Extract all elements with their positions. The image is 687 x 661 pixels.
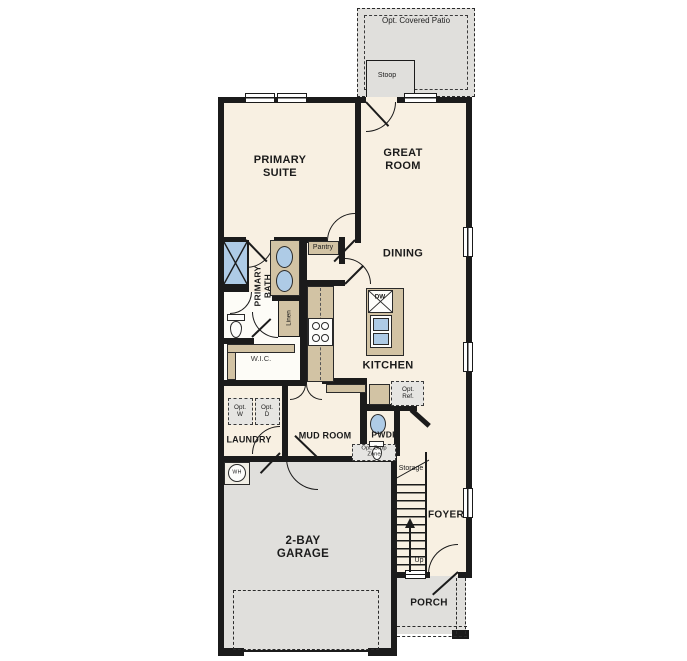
window (404, 93, 437, 103)
primary-suite-line1: PRIMARY (254, 154, 306, 167)
shower-x-pattern (224, 242, 247, 284)
pantry-label: Pantry (313, 244, 333, 252)
opt-dryer-line1: Opt. (261, 404, 273, 411)
stair-right-edge (425, 452, 427, 578)
wall-bath-kitchen-divider (300, 237, 307, 384)
opt-dryer-line2: D (261, 411, 273, 418)
shower (222, 240, 249, 286)
wall-laundry-mud-divider (282, 386, 288, 458)
porch-dashed-edge (456, 578, 457, 634)
laundry-label: LAUNDRY (226, 434, 271, 447)
fridge-cabinet (369, 384, 390, 405)
opt-washer-line1: Opt. (234, 404, 246, 411)
island-sink-basin (373, 318, 389, 331)
porch-label: PORCH (410, 597, 448, 610)
stoop-label: Stoop (378, 72, 396, 80)
primary-suite-label: PRIMARY SUITE (254, 154, 306, 180)
porch-dashed-edge (397, 636, 467, 637)
up-arrow-shaft (409, 527, 411, 572)
dw-label: DW (375, 294, 386, 301)
pwdr-label: PWDR (371, 429, 398, 442)
opt-washer-line2: W (234, 411, 246, 418)
opt-ref-label: Opt. Ref. (402, 386, 414, 400)
linen-label: Linen (286, 310, 293, 325)
window (463, 227, 473, 257)
great-room-line1: GREAT (383, 147, 422, 160)
garage-line1: 2-BAY (277, 535, 329, 548)
porch-corner-post (452, 630, 469, 639)
toilet-tank (227, 314, 245, 321)
garage-door-threshold (244, 650, 368, 652)
window (463, 342, 473, 372)
opt-ref-line2: Ref. (402, 393, 414, 400)
garage-door-dashed (233, 590, 379, 650)
garage-line2: GARAGE (277, 548, 329, 561)
primary-bath-label: PRIMARY BATH (254, 266, 273, 307)
wall-primary-great-divider (355, 97, 361, 243)
vanity-sink (276, 246, 293, 268)
window (277, 93, 307, 103)
burner (312, 334, 320, 342)
up-label: Up (415, 557, 424, 565)
primary-bath-line2: BATH (263, 266, 273, 307)
up-arrow-head (405, 518, 415, 528)
window (245, 93, 275, 103)
storage-label: Storage (399, 465, 424, 473)
primary-suite-line2: SUITE (254, 167, 306, 180)
water-heater-label: WH (232, 467, 241, 480)
opt-ref-line1: Opt. (402, 386, 414, 393)
drop-zone-label: Opt. Drop Zone (361, 446, 386, 459)
burner (312, 322, 320, 330)
great-room-line2: ROOM (383, 160, 422, 173)
range (308, 318, 333, 346)
vanity-sink (276, 270, 293, 292)
mud-bench (326, 384, 366, 393)
wall-left (218, 97, 224, 656)
foyer-label: FOYER (428, 509, 464, 522)
window (463, 488, 473, 518)
kitchen-label: KITCHEN (363, 360, 414, 373)
opt-dryer-label: Opt. D (261, 404, 273, 418)
floor-plan: Opt. Covered Patio Stoop PRIMARY SUITE G… (0, 0, 687, 661)
burner (321, 334, 329, 342)
dining-label: DINING (383, 248, 423, 261)
wic-label: W.I.C. (251, 355, 271, 363)
patio-label: Opt. Covered Patio (382, 17, 450, 25)
burner (321, 322, 329, 330)
drop-zone-line2: Zone (361, 452, 386, 458)
mud-room-label: MUD ROOM (299, 430, 352, 443)
opt-washer-label: Opt. W (234, 404, 246, 418)
porch-dashed-edge (465, 578, 466, 634)
great-room-label: GREAT ROOM (383, 147, 422, 173)
wic-shelf-left (227, 352, 236, 380)
island-sink-basin (373, 333, 389, 345)
wic-shelf-top (227, 344, 295, 353)
garage-label: 2-BAY GARAGE (277, 535, 329, 561)
